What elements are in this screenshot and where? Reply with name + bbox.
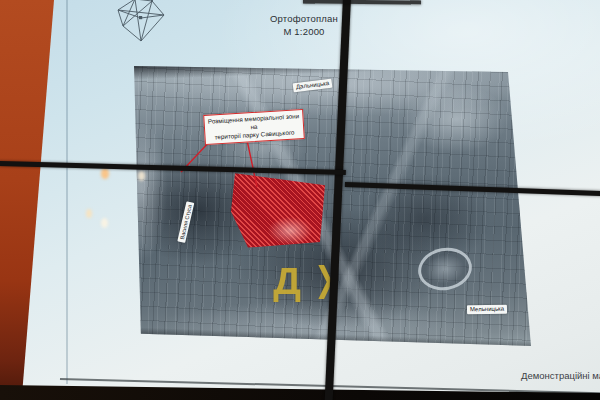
street-label-melnytska: Мельницька	[467, 305, 507, 315]
slide-footer-text: Демонстраційні мате	[521, 370, 600, 381]
screen-reflection-flare	[101, 168, 109, 179]
panel-seam-faint-left	[66, 0, 68, 384]
screen-reflection-flare	[101, 218, 108, 228]
memorial-zone-annotation: Розміщення меморіальної зони на територі…	[203, 109, 305, 145]
wireframe-logo-icon	[108, 0, 170, 44]
map-overlay-letter-d: Д	[273, 261, 301, 303]
screen-reflection-flare	[86, 209, 92, 218]
screen-reflection-flare	[138, 171, 145, 181]
photo-of-presentation-video-wall: Ортофотоплан М 1:2000 Розміщення меморіа…	[0, 0, 600, 400]
